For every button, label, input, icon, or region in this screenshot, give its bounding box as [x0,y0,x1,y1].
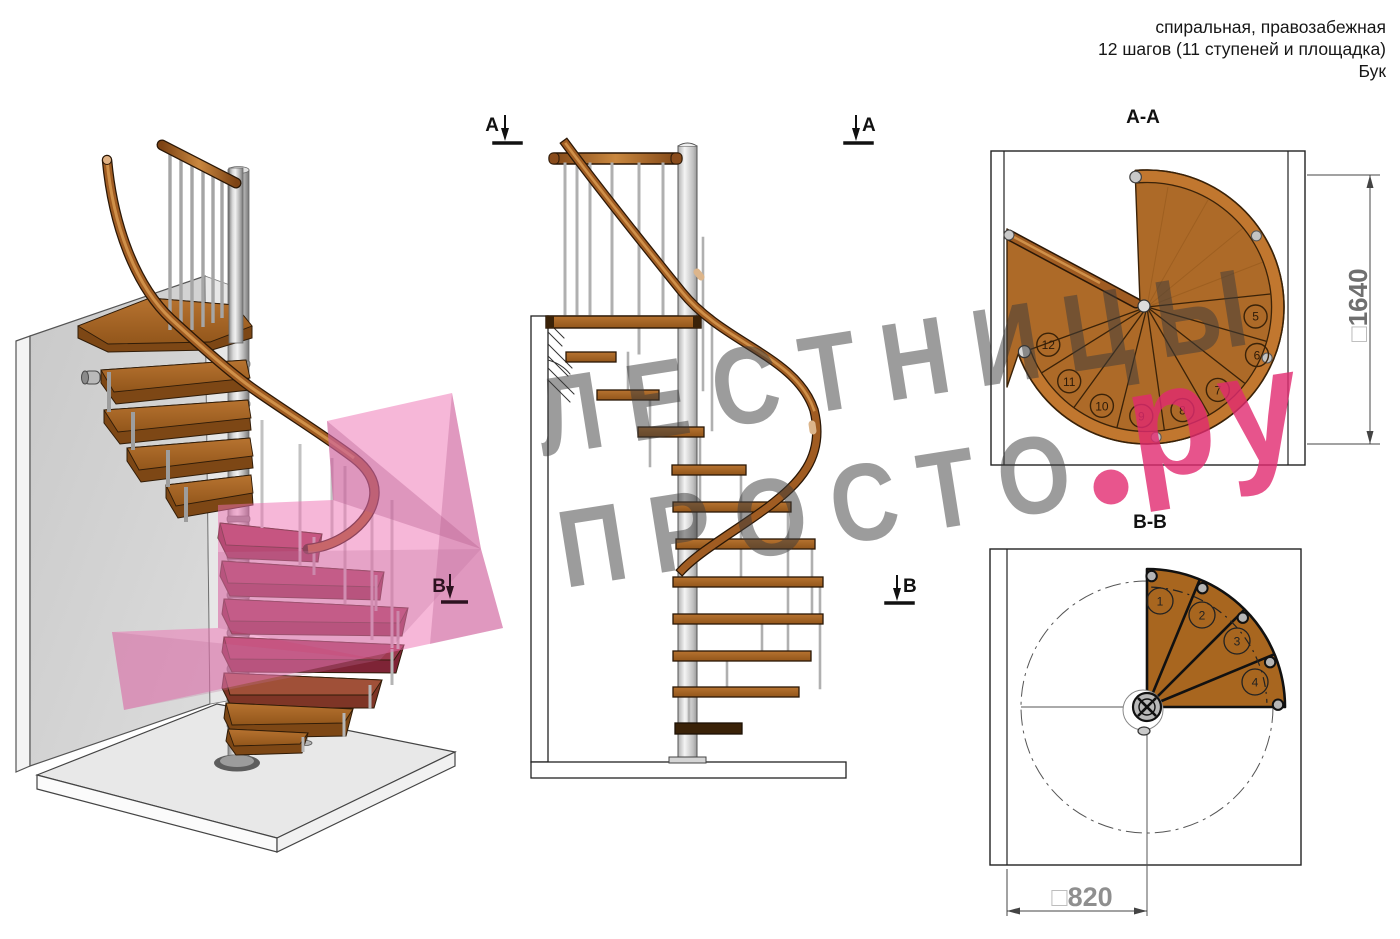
svg-text:□1640: □1640 [1343,268,1373,342]
svg-text:В: В [903,576,917,597]
svg-text:10: 10 [1095,399,1109,413]
svg-text:Бук: Бук [1358,61,1386,81]
svg-text:В: В [432,576,446,597]
svg-text:ру: ру [1114,311,1321,514]
svg-text:1: 1 [1157,595,1164,609]
svg-text:2: 2 [1199,609,1206,623]
svg-text:3: 3 [1234,635,1241,649]
svg-text:12 шагов (11 ступеней и площад: 12 шагов (11 ступеней и площадка) [1098,39,1386,59]
svg-text:А: А [862,115,876,136]
svg-text:□820: □820 [1051,882,1112,912]
svg-text:В-В: В-В [1133,512,1167,533]
svg-text:А: А [485,115,499,136]
svg-text:А-А: А-А [1126,107,1160,128]
svg-text:4: 4 [1252,676,1259,690]
svg-text:спиральная, правозабежная: спиральная, правозабежная [1155,17,1386,37]
